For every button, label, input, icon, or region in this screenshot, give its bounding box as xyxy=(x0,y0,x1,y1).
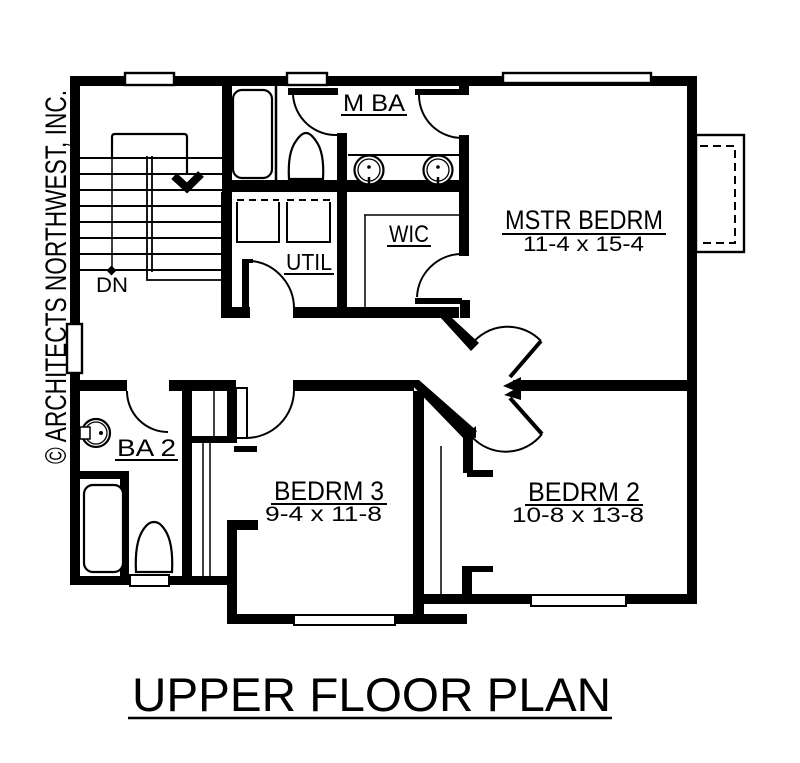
svg-text:UPPER FLOOR PLAN: UPPER FLOOR PLAN xyxy=(132,668,611,721)
svg-text:BEDRM 3: BEDRM 3 xyxy=(274,476,384,506)
svg-text:DN: DN xyxy=(96,274,128,297)
svg-text:9-4 x 11-8: 9-4 x 11-8 xyxy=(265,503,382,526)
svg-text:11-4 x 15-4: 11-4 x 15-4 xyxy=(523,233,644,256)
svg-text:M BA: M BA xyxy=(343,90,405,117)
svg-text:© ARCHITECTS NORTHWEST, INC.: © ARCHITECTS NORTHWEST, INC. xyxy=(40,90,73,464)
svg-text:MSTR BEDRM: MSTR BEDRM xyxy=(505,205,663,235)
svg-text:BA 2: BA 2 xyxy=(117,435,176,462)
svg-text:UTIL: UTIL xyxy=(286,249,332,275)
svg-text:BEDRM 2: BEDRM 2 xyxy=(528,477,640,507)
svg-text:10-8 x 13-8: 10-8 x 13-8 xyxy=(512,504,644,527)
svg-text:WIC: WIC xyxy=(389,221,429,248)
